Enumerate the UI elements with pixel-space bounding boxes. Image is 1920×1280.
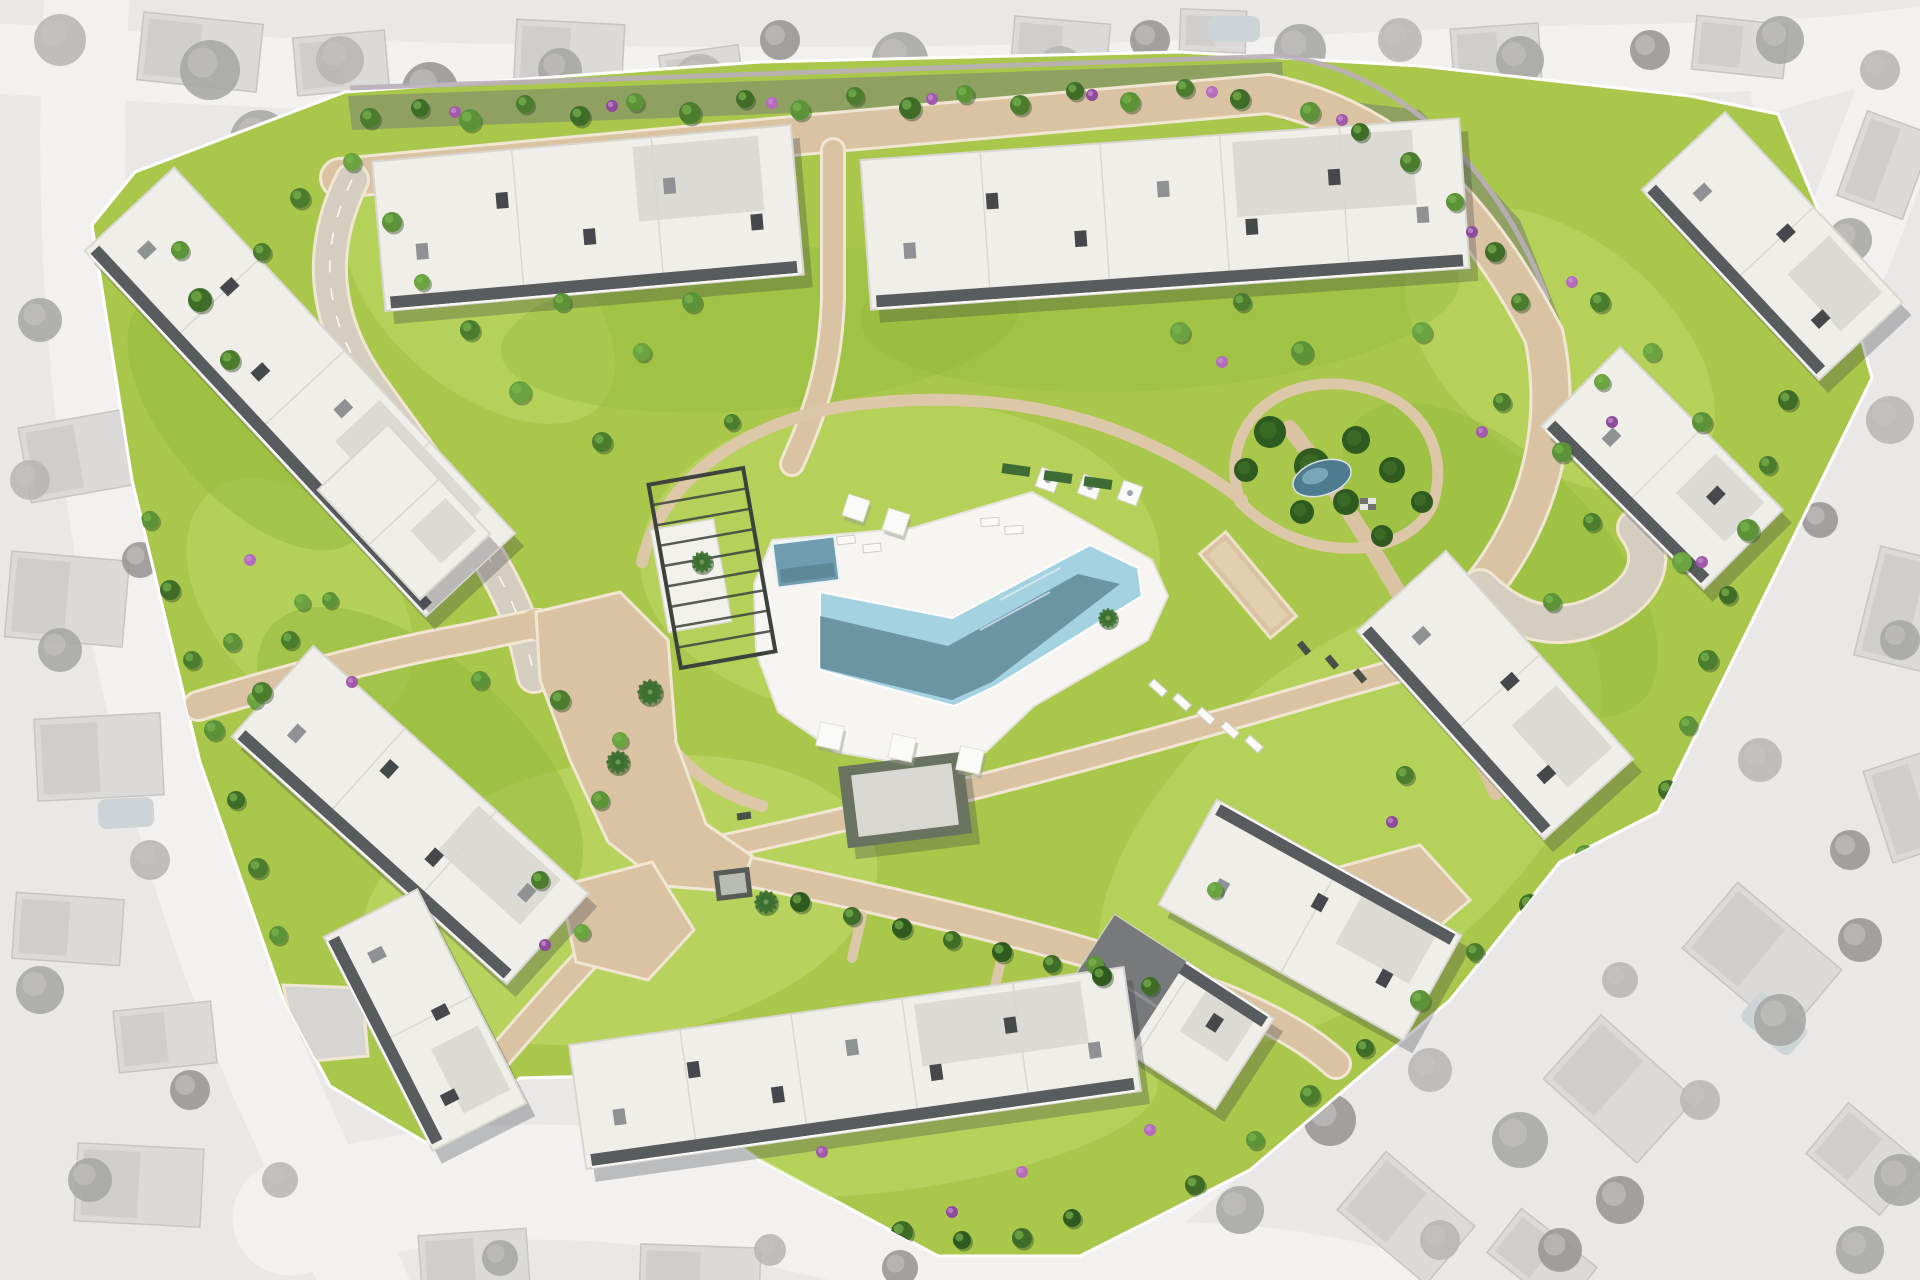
masterplan-svg <box>0 0 1920 1280</box>
lounger-white <box>863 543 882 553</box>
lounger-white <box>981 517 1000 526</box>
community-building <box>838 752 972 849</box>
site-plan-image <box>0 0 1920 1280</box>
context-house <box>34 713 164 801</box>
kids-pool <box>773 536 840 587</box>
context-house <box>113 1001 217 1073</box>
shade-sail <box>955 746 987 779</box>
context-house <box>639 1244 761 1280</box>
context-pool <box>1208 16 1260 42</box>
garden-kiosk <box>713 867 752 901</box>
lounger-white <box>1005 525 1024 534</box>
shade-sail <box>815 722 847 755</box>
context-house <box>12 892 124 965</box>
shade-sail <box>887 734 919 767</box>
context-pool <box>97 797 154 830</box>
lounger-white <box>837 535 856 545</box>
